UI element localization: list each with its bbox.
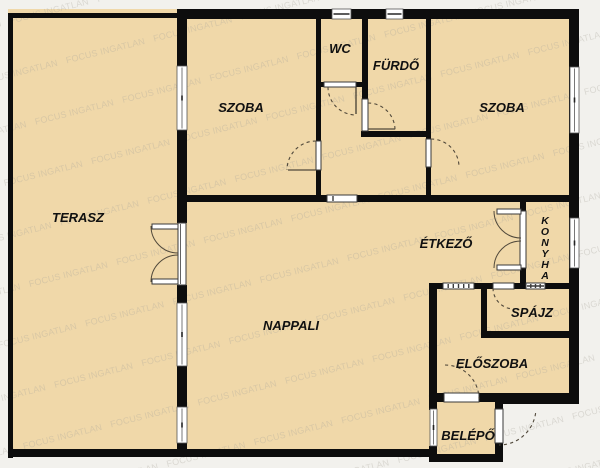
svg-text:SZOBA: SZOBA [218,100,264,115]
svg-text:ÉTKEZŐ: ÉTKEZŐ [420,236,473,251]
svg-text:A: A [540,270,549,282]
svg-text:SPÁJZ: SPÁJZ [511,305,554,320]
svg-text:WC: WC [329,41,351,56]
svg-text:FÜRDŐ: FÜRDŐ [373,58,419,73]
svg-text:TERASZ: TERASZ [52,210,105,225]
svg-text:BELÉPŐ: BELÉPŐ [441,428,494,443]
svg-text:ELŐSZOBA: ELŐSZOBA [456,356,528,371]
svg-text:NAPPALI: NAPPALI [263,318,319,333]
svg-text:SZOBA: SZOBA [479,100,525,115]
